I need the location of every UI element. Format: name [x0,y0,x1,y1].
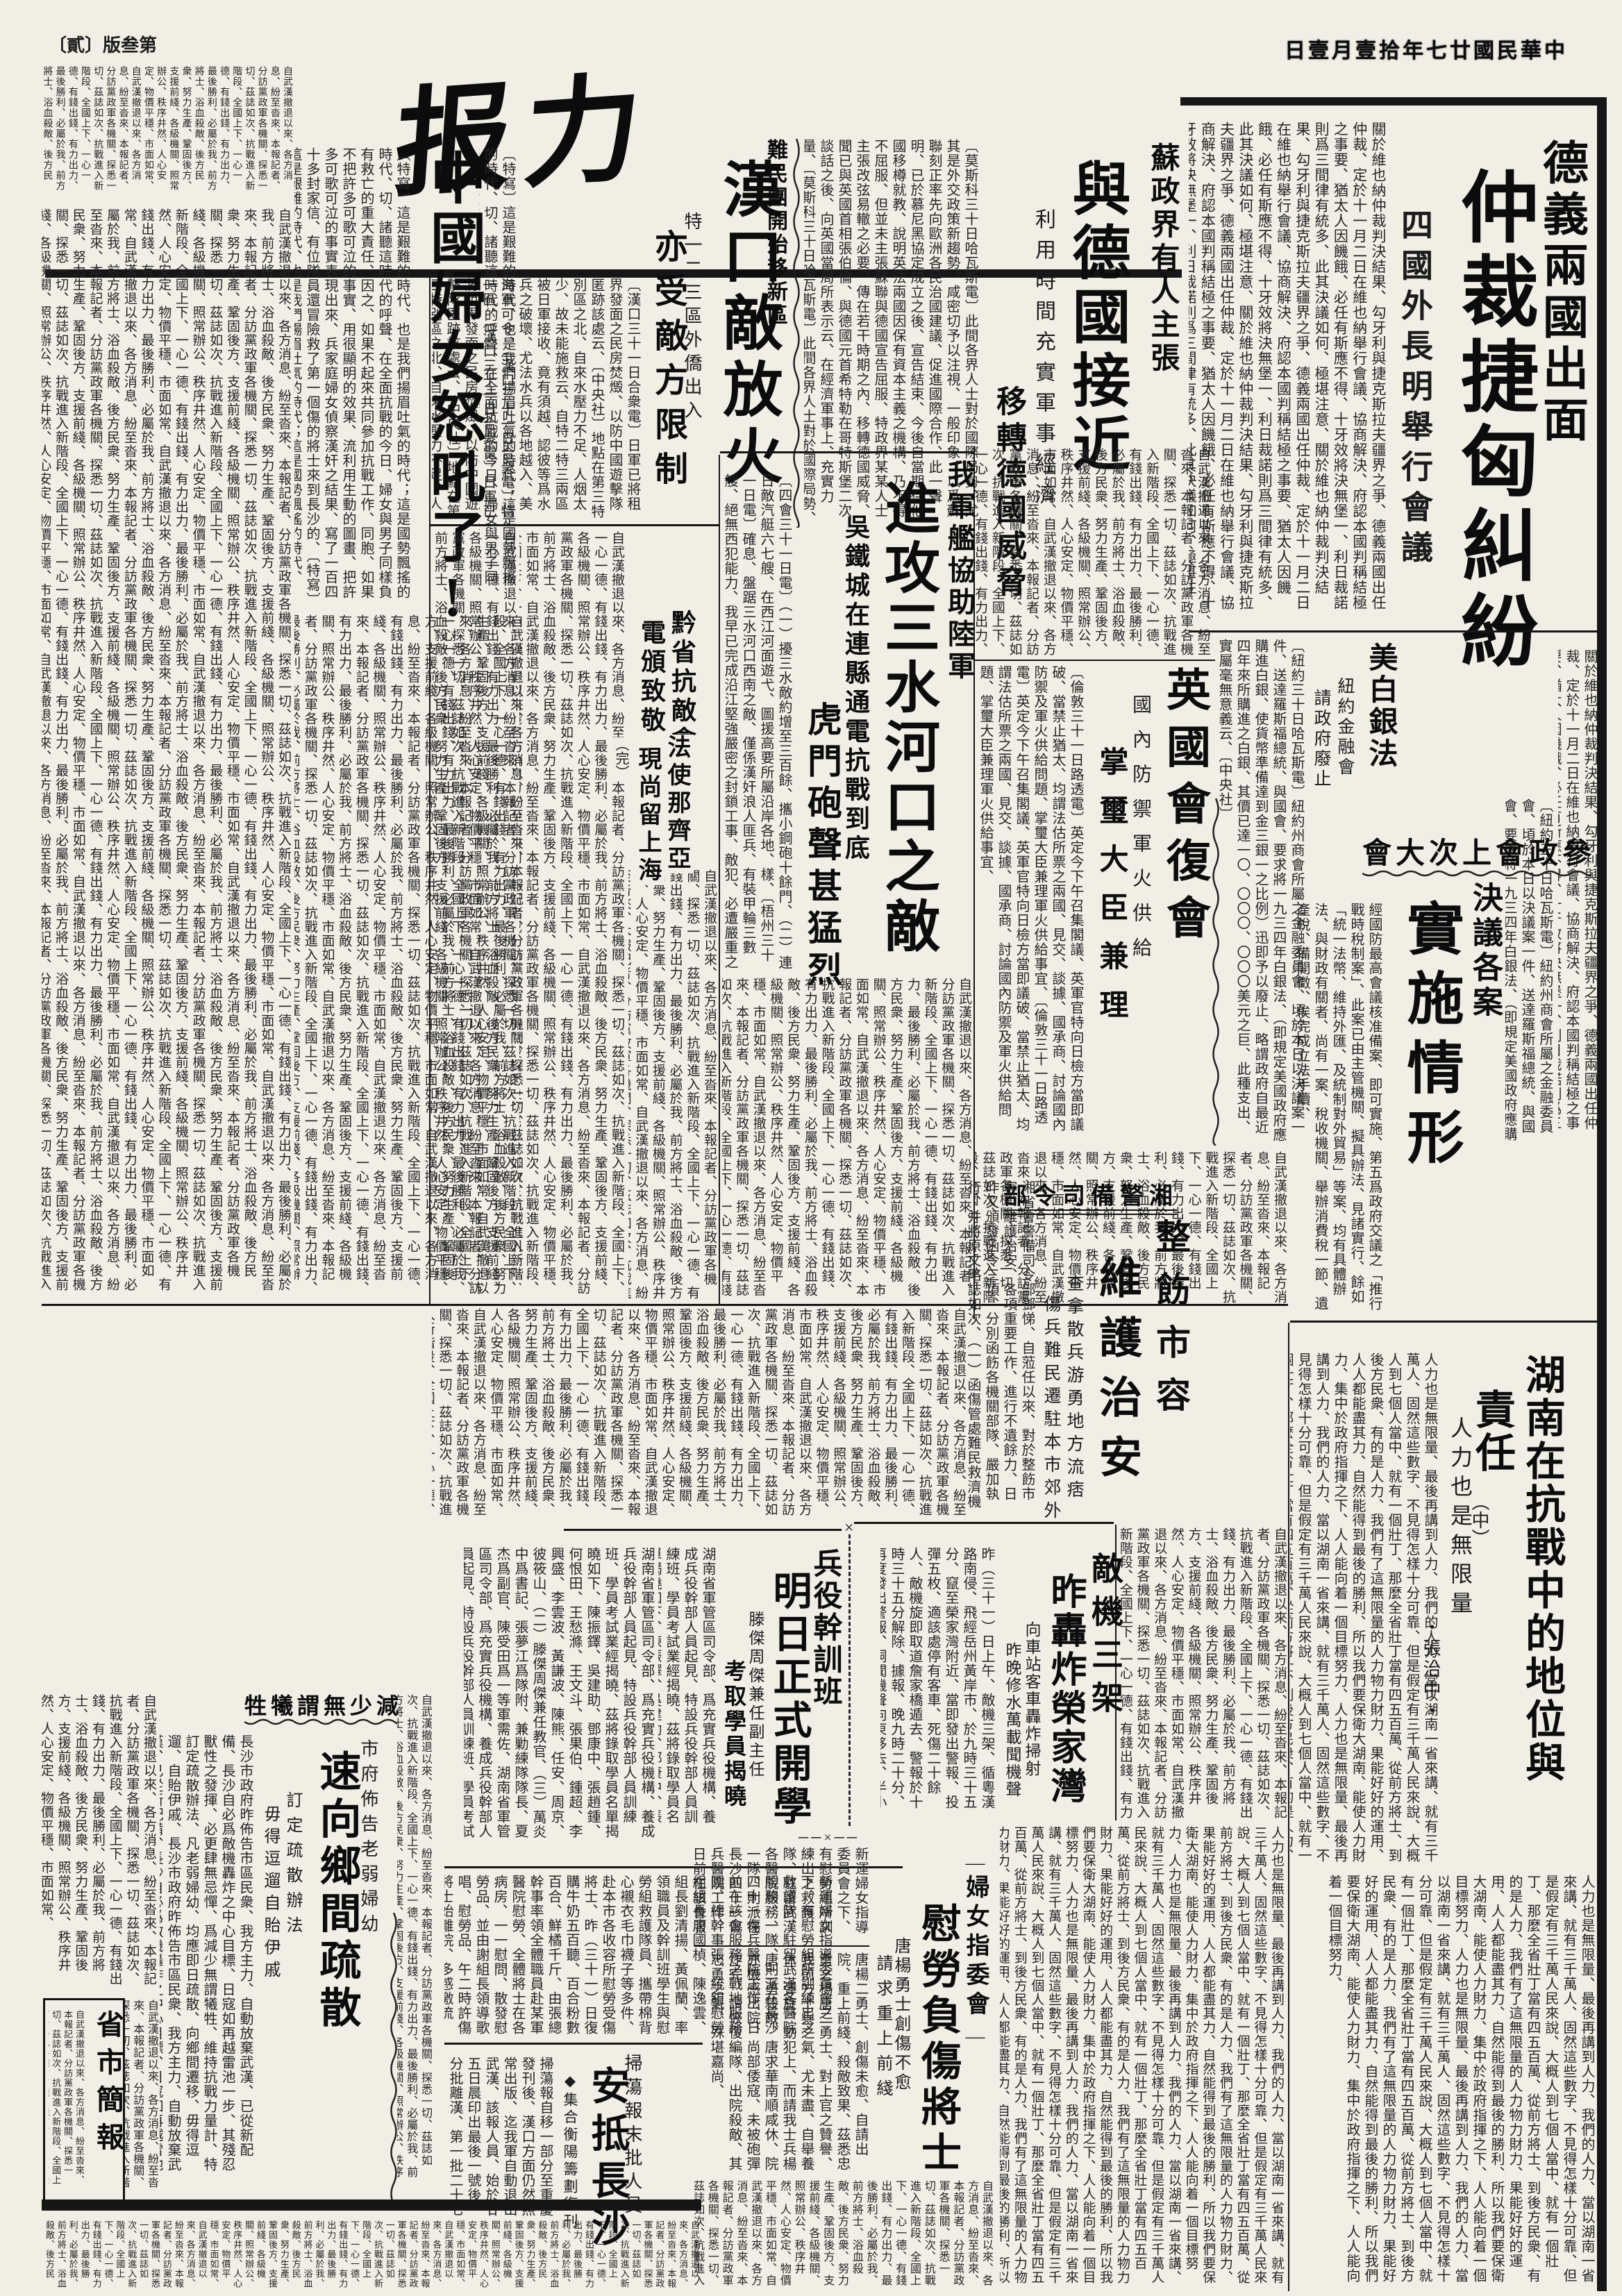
hunan-body-left: 人力也是無限量、最後再講到人力、我們的人力、當以湖南一省來講、就有三千萬人、固然… [1000,1826,1285,2288]
page-number-label: 〔貳〕版叁第 [49,31,157,57]
newspaper-page: 〔貳〕版叁第 报力 日壹月壹拾年七廿國民華中 德義兩國出面 仲裁捷匈糾紛 四國外… [0,0,1622,2296]
sanshui-subhead2: 虎門砲聲甚猛烈 [797,701,847,993]
airraid-body: 昨（三十一）日上午、敵機三架、循粵漢路南侵、飛經岳州黃岸市、於九時三十五分、竄至… [880,1547,996,1819]
left-of-evac-columns: 自武漢撤退以來、各方消息、紛至沓來、本報記者、分訪黨政軍各機關、探悉一切、茲誌如… [42,1694,157,1993]
hankou-subhead2: 亦受敵方限制 [643,229,692,496]
bottom-classifieds: 自武漢撤退以來、各方消息、紛至沓來、本報記者、分訪黨政軍各機關、探悉一切、茲誌如… [43,2220,700,2290]
wc-subhead2: 請求重上前綫 [871,1954,895,2104]
sweep-top-rule [444,2043,703,2045]
column-rule-2 [719,455,720,1304]
wavy-divider-3 [389,1913,399,2204]
lead-body: 關於維也納仲裁判決結果、勾牙利與捷克斯拉夫疆界之爭、德義兩國出任仲裁、定於十一月… [1189,121,1387,621]
bulletin-body: 自武漢撤退以來、各方消息、紛至沓來、本報記者、分訪黨政軍各機關、探悉一切、茲誌如… [49,2010,85,2187]
sweep-body: 掃蕩報自移一部分至重慶發刊後、漢口方面仍然照常出版、迄我軍自動退出武漢、該報人員… [449,2056,554,2222]
wc-body: 新運婦女指導委員會之下、有慰勞組所訓練出之救護隊、駐留武漢各醫院服務、一隊、則派… [694,1847,869,1941]
garrison-body: 湘省會警備司令部鄧悌、自蒞任以來、對於整飭市容、維護治安、各項重要工作、進行不遺… [967,1180,1036,1512]
wc-headline: 慰勞負傷將士 [908,1902,967,2177]
airraid-top-rule [854,1522,1114,1524]
draft-body: 湖南省軍管區司令部、爲充實兵役機構、養成兵役幹部人員起見、特設兵役幹部人員訓練班… [658,1547,717,1825]
french-envoy-headline-1: 法使那齊亞 [660,735,694,873]
left-bottom-narrow-column: 自武漢撤退以來、各方消息、紛至沓來、本報記者、分訪黨政軍各機關、探悉一切、茲誌如… [124,2000,158,2195]
garrison-continuation: 自武漢撤退以來、各方消息、紛至沓來、本報記者、分訪黨政軍各機關、探悉一切、茲誌如… [432,1308,967,1520]
ppc-body: 經國防最高會議核准備案、即可實施、第五爲政府交議之「推行戰時稅制案」、此案已由主… [1290,903,1383,1316]
silver-headline: 美白銀法 [1360,642,1402,770]
evac-kicker: 牲犧謂無少減 [244,1689,403,1720]
draft-names-list: 湖南省軍管區司令部、爲充實兵役機構、養成兵役幹部人員起見、特設兵役幹部人員訓練班… [464,1547,655,1847]
uk-top-rule [975,660,1215,661]
above-uk-columns: 自武漢撤退以來、各方消息、紛至沓來、本報記者、分訪黨政軍各機關、探悉一切、茲誌如… [975,448,1211,656]
airraid-subhead2: 昨晚修水萬載聞機聲 [1000,1642,1023,1798]
womenroar-body-left: 〔特寫〕這是艱難的時代、也是我們揚眉吐氣的時代；這是國勢飄搖的時代、切、諸聽這時… [294,147,411,602]
dashed-divider-1 [848,1534,851,1826]
x-junction-2: ──×── [799,1830,860,1846]
column-rule-1 [429,278,430,1304]
lead-bottom-rule [1189,630,1598,632]
garrison-head2: 維護治安 [1085,1255,1147,1494]
hunan-body-lower: 人力也是無限量、最後再講到人力、我們的人力、當以湖南一省來講、就有三千萬人、固然… [1290,1875,1596,2288]
garrison-head1: 整飭市容 [1146,1218,1196,1430]
wc-inner-rule [694,1945,869,1947]
hunan-headline-1: 湖南在抗戰中的地位與 [1512,1354,1571,1784]
wc-body2: 唐楊二勇士、創傷未愈、自請出院、重上前綫、殺敵致果、茲悉忠勇之楊唐二勇士、對上官… [694,1952,869,2173]
ppc-wavy-underline [1362,869,1591,878]
lead-body-tail: 關於維也納仲裁判決結果、勾牙利與捷克斯拉夫疆界之爭、德義兩國出任仲裁、定於十一月… [1558,649,1598,1135]
soviet-headline: 與德國接近 [1054,158,1138,478]
bottom-thick-rule [42,2199,701,2211]
airraid-headline: 昨轟炸榮家灣 [1039,1573,1091,1806]
hunan-subhead: 人力也是無限量 [1444,1416,1476,1620]
mid-columns-c: 自武漢撤退以來、各方消息、紛至沓來、本報記者、分訪黨政軍各機關、探悉一切、茲誌如… [432,531,517,1300]
ppc-headline: 實施情形 [1389,899,1471,1177]
mid-columns-b: 自武漢撤退以來、各方消息、紛至沓來、本報記者、分訪黨政軍各機關、探悉一切、茲誌如… [628,869,717,1300]
french-envoy-headline-2: 現尚留上海 [630,746,664,885]
below-wc-columns: 自武漢撤退以來、各方消息、紛至沓來、本報記者、分訪黨政軍各機關、探悉一切、茲誌如… [694,2180,993,2288]
hunan-body: 人力也是無限量、最後再講到人力、我們的人力、當以湖南一省來講、就有三千萬人、固然… [1290,1352,1439,1870]
column-rule-4 [1288,1323,1289,2291]
evac-subhead1: 訂定疏散辦法 [281,1791,305,1941]
wc-kicker-dash-top: — [964,1852,986,1874]
mid-rule-right [1290,1321,1598,1323]
draft-headline: 明日正式開學 [761,1570,817,1829]
evac-body: 長沙市政府昨佈告市區民衆、我方主力、自動放棄武漢、已從新配備、長沙自必爲敵機轟炸… [160,1734,254,2186]
draft-subhead2: 考取學員揭曉 [718,1659,750,1809]
gap-column: 自武漢撤退以來、各方消息、紛至沓來、本報記者、分訪黨政軍各機關、探悉一切、茲誌如… [397,1694,432,2180]
lead-subhead: 四國外長明舉行會議 [1391,208,1437,571]
ppc-section-header: 會大次上會政參 [1362,830,1596,872]
sanshui-headline: 進攻三水河口之敵 [867,479,947,957]
sanshui-body: 〔四會三十一日電〕（一）擾三水敵約增至三百餘、攜小鋼砲十餘門、（二）連日敵汽艇六… [722,474,793,971]
uk-subhead2: 掌璽大臣兼理 [1090,746,1132,1038]
date-line: 日壹月壹拾年七廿國民華中 [1285,33,1568,64]
garrison-subhead1: 查拿散兵游勇地方流痞 [1061,1274,1086,1503]
evac-headline: 速向鄉間疏散 [307,1750,367,2033]
sanshui-top-rule [720,451,975,453]
sanshui-continuation: 自武漢撤退以來、各方消息、紛至沓來、本報記者、分訪黨政軍各機關、探悉一切、茲誌如… [722,978,972,1300]
hankou-headline: 漢口敵放火 [704,158,791,492]
lead-frame-top [1180,97,1607,106]
soviet-kicker: 蘇政界有人主張 [1142,142,1184,376]
wc-kicker-dash-bottom: — [964,2026,986,2047]
lead-headline: 仲裁捷匈糾紛 [1436,167,1548,675]
womenroar-continuation: 自武漢撤退以來、各方消息、紛至沓來、本報記者、分訪黨政軍各機關、探悉一切、茲誌如… [42,208,292,1302]
uk-headline: 英國會復會 [1153,667,1216,951]
uk-body: 〔倫敦三十一日路透電〕英定今下午召集閣議、英軍官特向日檢方當即議破、當禁止猶太、… [975,665,1085,1146]
guizhou-headline-2: 電頒致敬 [633,619,669,736]
left-column-small-print: 自武漢撤退以來、各方消息、紛至沓來、本報記者、分訪黨政軍各機關、探悉一切、茲誌如… [43,66,293,198]
wavy-divider-1 [792,139,801,528]
right-edge-border [1597,97,1607,2291]
silver-subhead2: 請政府廢止 [1308,689,1333,789]
french-envoy-end-mark: （完） [611,737,631,779]
silver-subhead1: 紐約金融會 [1332,677,1357,778]
bulletin-title: 省市簡報 [87,2010,128,2160]
garrison-subhead2: 傷兵難民遷駐本市郊外 [1038,1295,1063,1524]
mid-columns-a: 自武漢撤退以來、各方消息、紛至沓來、本報記者、分訪黨政軍各機關、探悉一切、茲誌如… [519,531,625,1300]
draft-top-rule [564,1529,842,1531]
evac-subhead2: 毋得逗遛自貽伊戚 [258,1805,283,1983]
airraid-right-columns: 自武漢撤退以來、各方消息、紛至沓來、本報記者、分訪黨政軍各機關、探悉一切、茲誌如… [1117,1527,1287,1820]
evac-wavy-underline [244,1718,397,1726]
